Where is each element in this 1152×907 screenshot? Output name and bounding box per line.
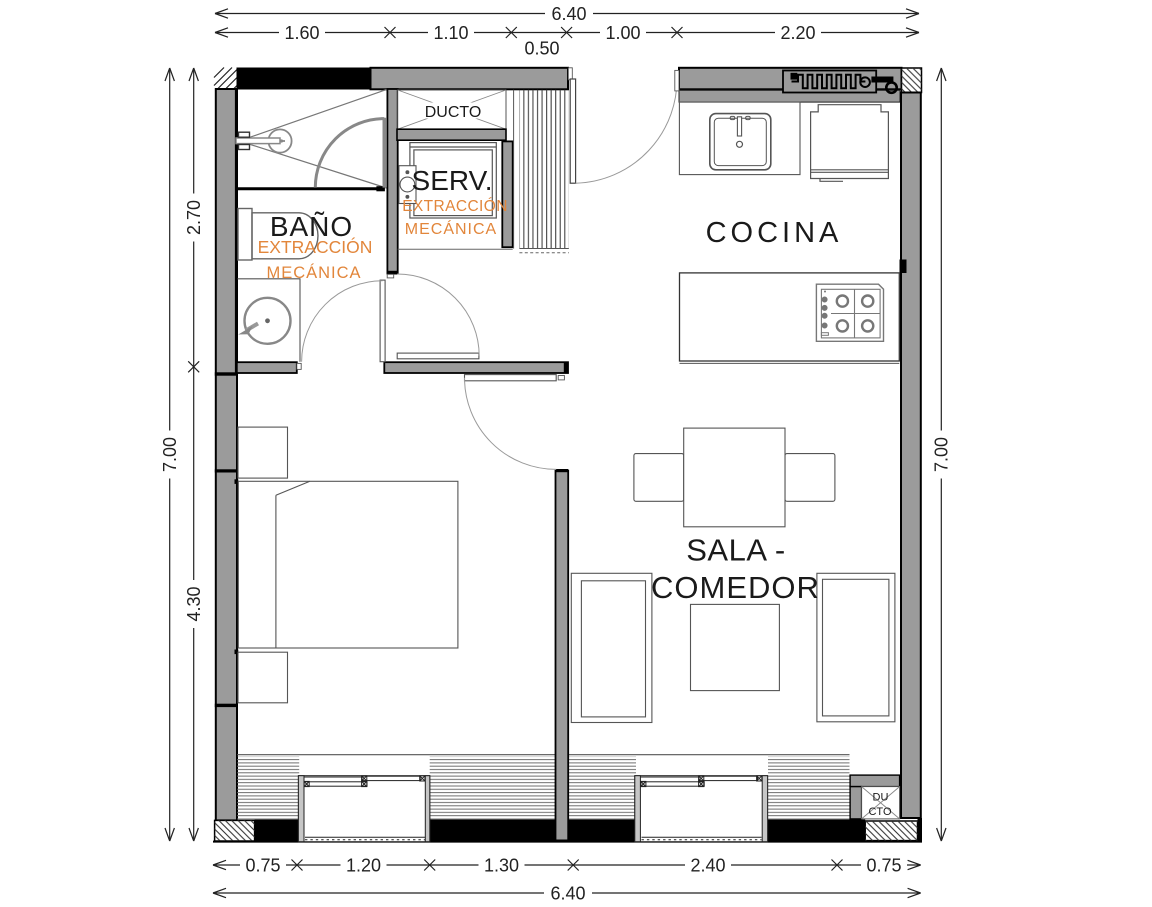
svg-text:CTO: CTO bbox=[868, 806, 891, 818]
svg-text:COCINA: COCINA bbox=[706, 217, 843, 249]
svg-text:MECÁNICA: MECÁNICA bbox=[266, 263, 361, 282]
svg-text:7.00: 7.00 bbox=[160, 437, 180, 472]
svg-text:4.30: 4.30 bbox=[184, 586, 204, 621]
svg-text:MECÁNICA: MECÁNICA bbox=[405, 219, 497, 238]
svg-text:0.75: 0.75 bbox=[866, 855, 901, 875]
svg-text:EXTRACCIÓN: EXTRACCIÓN bbox=[402, 198, 508, 215]
svg-text:6.40: 6.40 bbox=[550, 883, 585, 903]
svg-text:EXTRACCIÓN: EXTRACCIÓN bbox=[258, 236, 373, 257]
svg-text:0.50: 0.50 bbox=[524, 39, 559, 59]
svg-text:6.40: 6.40 bbox=[551, 4, 586, 24]
svg-text:2.70: 2.70 bbox=[184, 200, 204, 235]
svg-text:1.00: 1.00 bbox=[605, 23, 640, 43]
svg-text:1.10: 1.10 bbox=[433, 23, 468, 43]
svg-text:DU: DU bbox=[873, 792, 889, 804]
svg-text:2.40: 2.40 bbox=[690, 855, 725, 875]
svg-text:1.30: 1.30 bbox=[484, 855, 519, 875]
svg-text:0.75: 0.75 bbox=[245, 855, 280, 875]
svg-text:DUCTO: DUCTO bbox=[425, 104, 482, 121]
svg-text:SALA -: SALA - bbox=[686, 533, 786, 568]
svg-text:1.60: 1.60 bbox=[284, 23, 319, 43]
svg-text:1.20: 1.20 bbox=[346, 855, 381, 875]
svg-text:7.00: 7.00 bbox=[932, 437, 952, 472]
svg-text:SERV.: SERV. bbox=[412, 165, 493, 196]
svg-text:COMEDOR: COMEDOR bbox=[651, 570, 820, 605]
svg-text:2.20: 2.20 bbox=[780, 23, 815, 43]
